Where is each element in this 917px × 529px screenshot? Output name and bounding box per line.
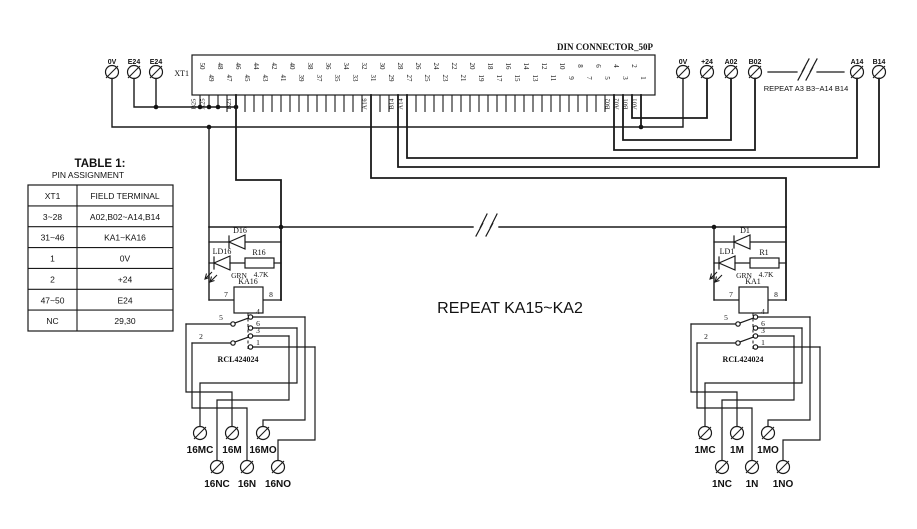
table-cell: KA1~KA16 bbox=[104, 233, 146, 243]
contact-pin-label: 5 bbox=[724, 313, 728, 322]
pin-number: 10 bbox=[558, 63, 566, 71]
field-terminal-label: 16MO bbox=[249, 445, 276, 456]
din-connector-title: DIN CONNECTOR_50P bbox=[557, 42, 654, 52]
pin-number: 15 bbox=[513, 75, 521, 83]
pin-number: 45 bbox=[243, 75, 251, 83]
wire-label: B14 bbox=[389, 98, 396, 110]
wire bbox=[186, 324, 232, 427]
contact-pin-label: 1 bbox=[256, 338, 260, 347]
pin-number: 36 bbox=[324, 63, 332, 71]
contact-arm bbox=[740, 337, 754, 342]
table-cell: 31~46 bbox=[41, 233, 65, 243]
junction-dot bbox=[198, 105, 203, 110]
pin-number: 28 bbox=[396, 63, 404, 71]
wire-label: A16 bbox=[362, 98, 369, 110]
contact-point-icon bbox=[248, 326, 252, 330]
resistor-icon bbox=[750, 258, 779, 268]
wire-label: B23 bbox=[226, 99, 233, 110]
pin-number: 2 bbox=[630, 64, 638, 68]
pin-number: 8 bbox=[576, 64, 584, 68]
pin-number: 6 bbox=[594, 64, 602, 68]
contact-pin-label: 5 bbox=[219, 313, 223, 322]
led-emission-arrow-icon bbox=[210, 275, 217, 282]
pin-number: 44 bbox=[252, 63, 260, 71]
contact-pin-label: 1 bbox=[761, 338, 765, 347]
table-cell: 29,30 bbox=[114, 316, 136, 326]
field-terminal-label: 16M bbox=[222, 445, 241, 456]
relay-unit-1: D1 LD1 GRN R1 4.7K KA1 7 8 5 4 6 bbox=[691, 226, 820, 490]
pin-number: 14 bbox=[522, 63, 530, 71]
field-terminal-label: 1M bbox=[730, 445, 744, 456]
relay-part-number: RCL424024 bbox=[723, 355, 764, 364]
led-icon bbox=[214, 256, 230, 270]
pin-number: 19 bbox=[477, 75, 485, 83]
pin31-wire bbox=[371, 95, 786, 227]
pin-number: 27 bbox=[405, 75, 413, 83]
schematic-page: DIN CONNECTOR_50P XT1 504846444240383634… bbox=[0, 0, 917, 529]
pin-assignment-table: TABLE 1: PIN ASSIGNMENT XT1 FIELD TERMIN… bbox=[28, 158, 173, 331]
pin-number: 37 bbox=[315, 75, 323, 83]
pin-number: 34 bbox=[342, 63, 350, 71]
contact-point-icon bbox=[753, 326, 757, 330]
contact-point-icon bbox=[736, 341, 740, 345]
pin-number: 26 bbox=[414, 63, 422, 71]
pin-number: 13 bbox=[531, 75, 539, 83]
resistor-label: R16 bbox=[252, 248, 265, 257]
table-cell: NC bbox=[46, 316, 58, 326]
table-title: TABLE 1: bbox=[75, 158, 126, 170]
field-terminal-label: 16N bbox=[238, 479, 256, 490]
field-terminal-label: 16NO bbox=[265, 479, 291, 490]
pin-number: 5 bbox=[603, 76, 611, 80]
pin-number: 41 bbox=[279, 75, 287, 83]
contact-arm bbox=[235, 318, 249, 323]
table-header-xt1: XT1 bbox=[45, 191, 61, 201]
left-terminal-group: 0V E24 E24 bbox=[106, 59, 163, 79]
junction-dot bbox=[207, 105, 212, 110]
wire-label: B25 bbox=[191, 99, 198, 110]
pin-number: 1 bbox=[639, 76, 647, 80]
wire-label: B02 bbox=[605, 99, 612, 110]
field-terminal-label: 16NC bbox=[204, 479, 230, 490]
pin-number: 16 bbox=[504, 63, 512, 71]
pin-number: 9 bbox=[567, 76, 575, 80]
pin-number: 4 bbox=[612, 64, 620, 68]
coil-label: KA16 bbox=[238, 277, 258, 286]
table-cell: 1 bbox=[50, 254, 55, 264]
table-subtitle: PIN ASSIGNMENT bbox=[52, 170, 124, 180]
pin-number: 42 bbox=[270, 63, 278, 71]
table-cell: A02,B02~A14,B14 bbox=[90, 212, 160, 222]
pin-number: 39 bbox=[297, 75, 305, 83]
connector-ref-label: XT1 bbox=[174, 69, 189, 78]
pin-number: 21 bbox=[459, 75, 467, 83]
resistor-value-label: 4.7K bbox=[759, 270, 774, 279]
pin-number: 32 bbox=[360, 63, 368, 71]
resistor-label: R1 bbox=[759, 248, 768, 257]
pin-number: 35 bbox=[333, 75, 341, 83]
field-terminal-label: 16MC bbox=[187, 445, 214, 456]
contact-pin-label: 4 bbox=[256, 307, 260, 316]
pin-number: 23 bbox=[441, 75, 449, 83]
contact-pin-label: 4 bbox=[761, 307, 765, 316]
pin-number: 24 bbox=[432, 63, 440, 71]
pin-number: 18 bbox=[486, 63, 494, 71]
diode-icon bbox=[734, 235, 750, 249]
contact-pin-label: 2 bbox=[199, 332, 203, 341]
contact-pin-label: 2 bbox=[704, 332, 708, 341]
field-terminal-label: 1N bbox=[746, 479, 759, 490]
pin-number: 47 bbox=[225, 75, 233, 83]
led-icon bbox=[719, 256, 735, 270]
center-repeat-note: REPEAT KA15~KA2 bbox=[437, 300, 583, 317]
field-terminal-label: 1MO bbox=[757, 445, 779, 456]
relay-unit-0: D16 LD16 GRN R16 4.7K KA16 7 8 5 4 6 bbox=[186, 226, 315, 490]
wire bbox=[691, 324, 737, 427]
table-cell: +24 bbox=[118, 274, 133, 284]
pin-number: 40 bbox=[288, 63, 296, 71]
contact-arm bbox=[235, 337, 249, 342]
contact-point-icon bbox=[248, 345, 252, 349]
contact-point-icon bbox=[753, 345, 757, 349]
contact-point-icon bbox=[248, 315, 252, 319]
field-terminal-label: 1NC bbox=[712, 479, 732, 490]
led-label: LD1 bbox=[720, 247, 735, 256]
coil-pin-label: 8 bbox=[269, 290, 273, 299]
led-emission-arrow-icon bbox=[715, 275, 722, 282]
contact-pin-label: 3 bbox=[256, 326, 260, 335]
led-label: LD16 bbox=[213, 247, 232, 256]
table-cell: 3~28 bbox=[43, 212, 62, 222]
pin-number: 46 bbox=[234, 63, 242, 71]
pin-number: 43 bbox=[261, 75, 269, 83]
contact-point-icon bbox=[248, 334, 252, 338]
contact-point-icon bbox=[231, 341, 235, 345]
coil-label: KA1 bbox=[745, 277, 761, 286]
table-cell: E24 bbox=[117, 295, 132, 305]
wire bbox=[768, 317, 810, 427]
pin-number: 20 bbox=[468, 63, 476, 71]
contact-point-icon bbox=[736, 322, 740, 326]
diode-label: D1 bbox=[740, 226, 750, 235]
contact-point-icon bbox=[231, 322, 235, 326]
diode-label: D16 bbox=[233, 226, 247, 235]
field-terminal-label: 1MC bbox=[694, 445, 715, 456]
table-cell: 47~50 bbox=[41, 295, 65, 305]
wire bbox=[263, 317, 305, 427]
pin-number: 12 bbox=[540, 63, 548, 71]
repeat-terminals-note: REPEAT A3 B3~A14 B14 bbox=[764, 84, 849, 93]
relay-part-number: RCL424024 bbox=[218, 355, 259, 364]
pin46-wire bbox=[236, 95, 281, 227]
contact-pin-label: 3 bbox=[761, 326, 765, 335]
pin-number: 7 bbox=[585, 76, 593, 80]
junction-dot bbox=[154, 105, 159, 110]
pin-number: 17 bbox=[495, 75, 503, 83]
table-cell: 0V bbox=[120, 254, 131, 264]
pin-number: 11 bbox=[549, 75, 557, 82]
diode-icon bbox=[229, 235, 245, 249]
pin-number: 31 bbox=[369, 75, 377, 83]
pin-number: 25 bbox=[423, 75, 431, 83]
pin-number: 29 bbox=[387, 75, 395, 83]
break-symbol-icon bbox=[476, 214, 487, 236]
junction-dot bbox=[216, 105, 221, 110]
pin-number: 50 bbox=[198, 63, 206, 71]
pin-number: 38 bbox=[306, 63, 314, 71]
pin-number: 33 bbox=[351, 75, 359, 83]
pin-number: 22 bbox=[450, 63, 458, 71]
coil-pin-label: 8 bbox=[774, 290, 778, 299]
resistor-icon bbox=[245, 258, 274, 268]
pin-number: 30 bbox=[378, 63, 386, 71]
contact-point-icon bbox=[753, 315, 757, 319]
table-header-field: FIELD TERMINAL bbox=[90, 191, 160, 201]
break-symbol-icon bbox=[486, 214, 497, 236]
wire-labels: B25A25B23A16B14A14B02A02B01A01 bbox=[191, 98, 639, 110]
pin-number: 49 bbox=[207, 75, 215, 83]
relay-rail bbox=[209, 214, 786, 236]
field-terminal-label: 1NO bbox=[773, 479, 794, 490]
coil-pin-label: 7 bbox=[224, 290, 228, 299]
table-cell: 2 bbox=[50, 274, 55, 284]
schematic-drawing: DIN CONNECTOR_50P XT1 504846444240383634… bbox=[0, 0, 917, 529]
contact-point-icon bbox=[753, 334, 757, 338]
contact-arm bbox=[740, 318, 754, 323]
pin-number: 48 bbox=[216, 63, 224, 71]
coil-pin-label: 7 bbox=[729, 290, 733, 299]
pin-number: 3 bbox=[621, 76, 629, 80]
